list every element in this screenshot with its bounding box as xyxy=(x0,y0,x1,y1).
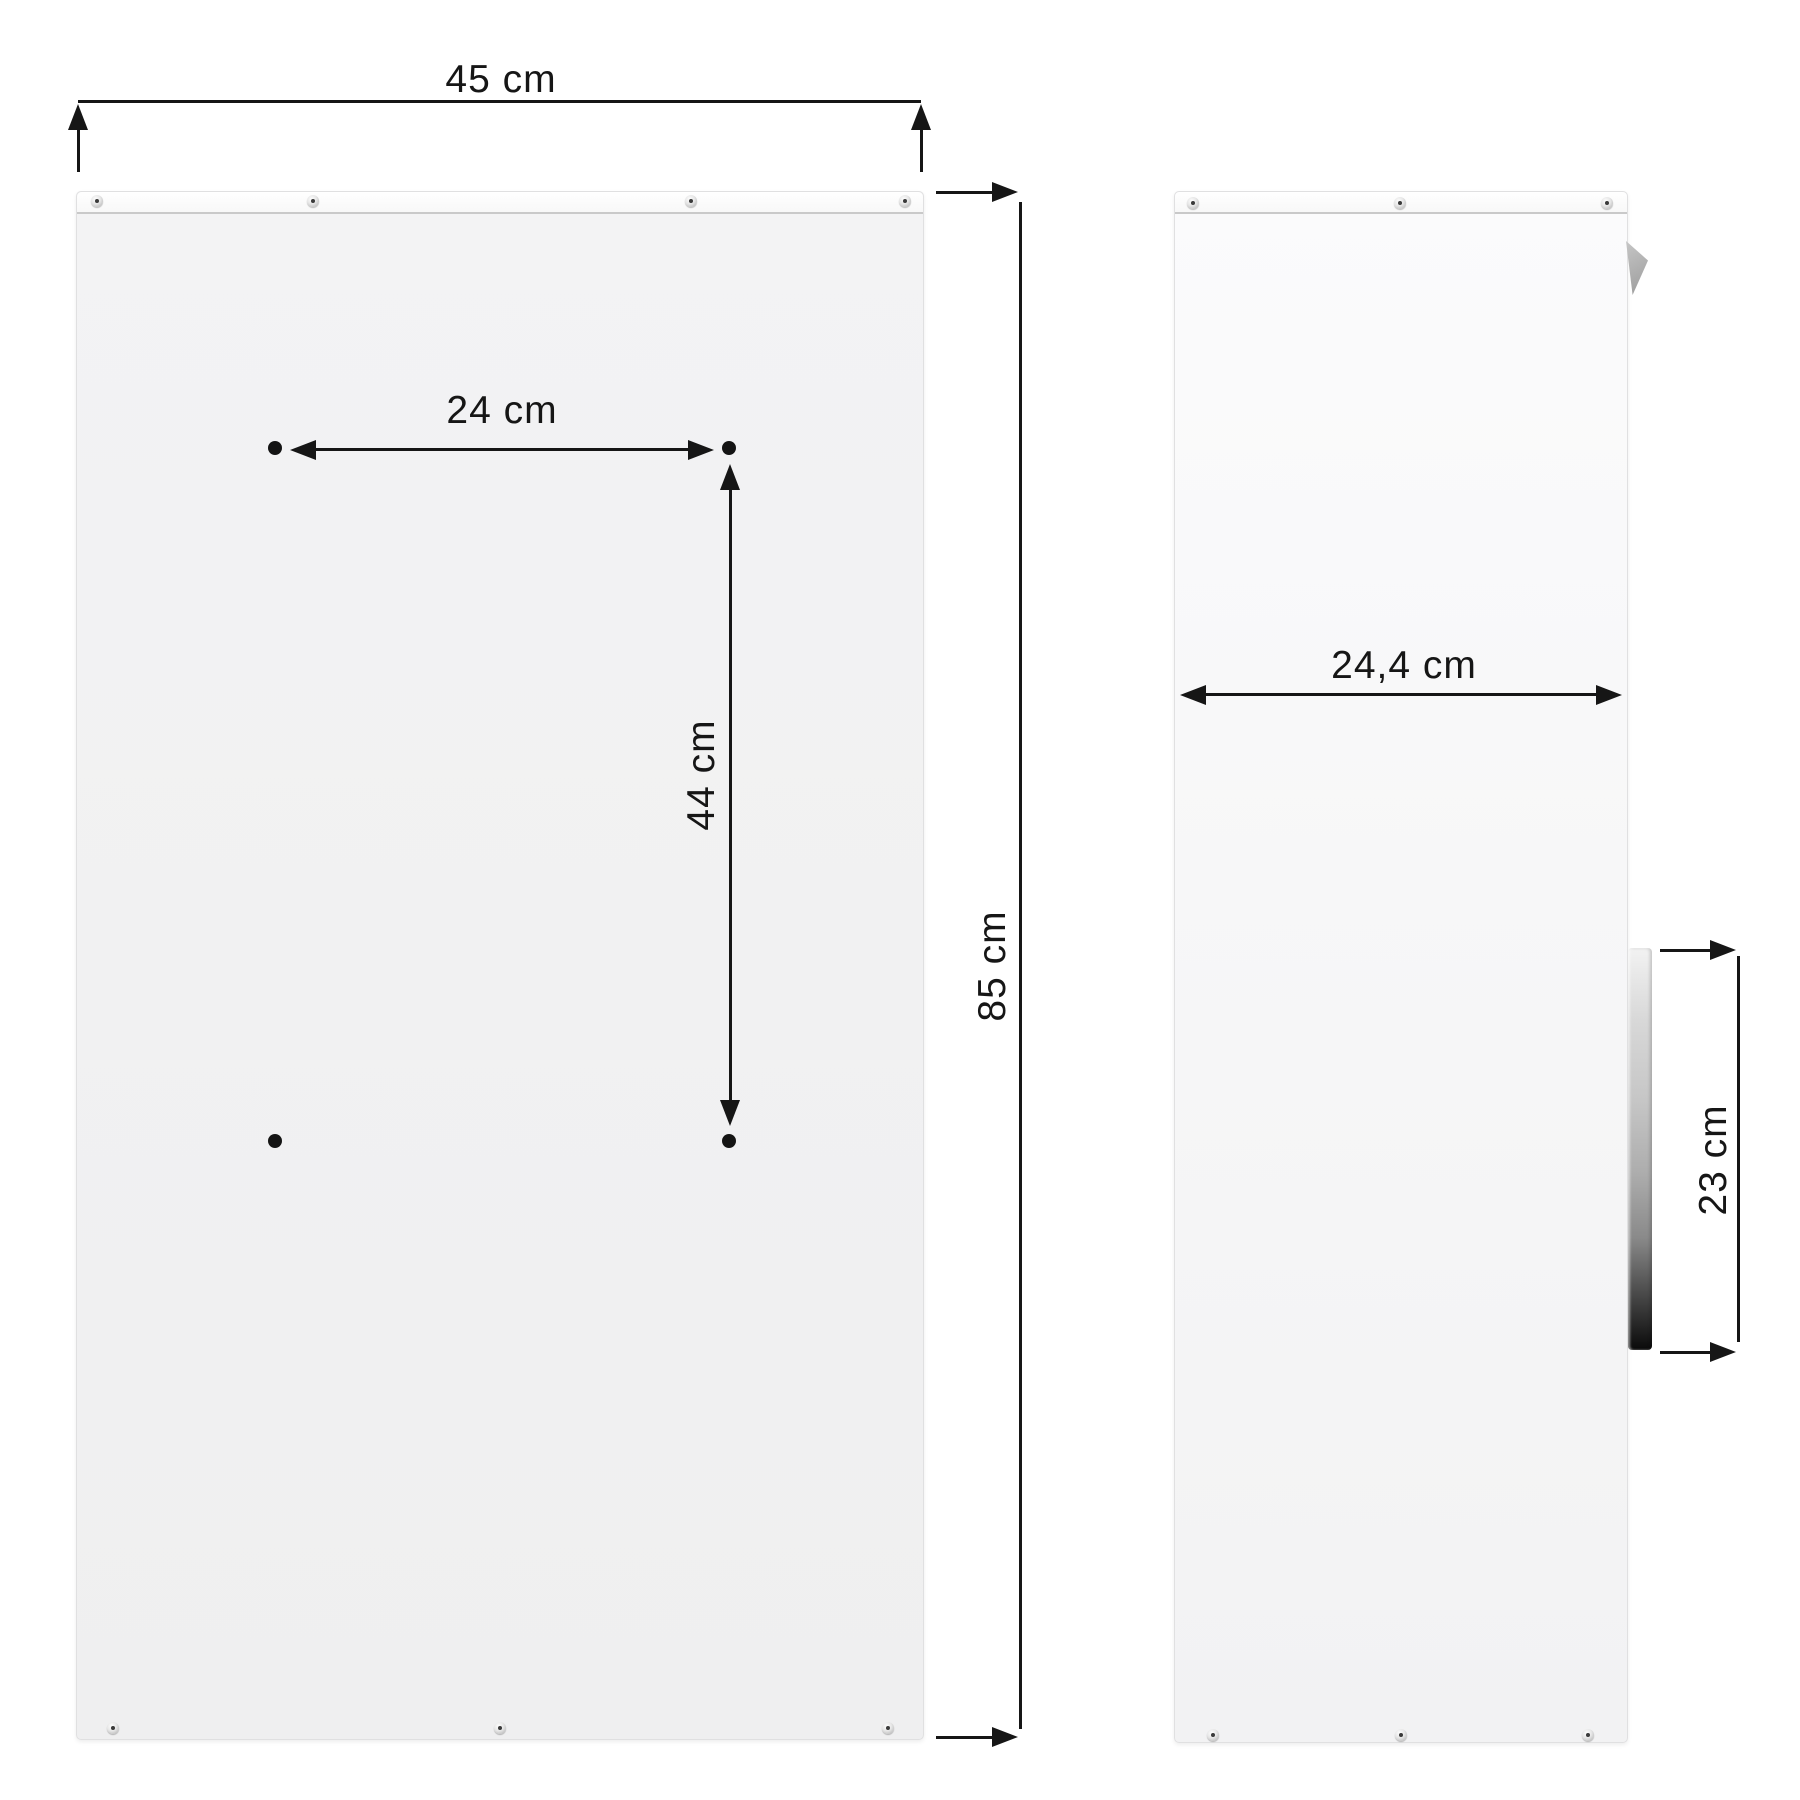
arrow-down-icon xyxy=(720,1100,740,1126)
corner-flap xyxy=(1626,241,1648,295)
screw-icon xyxy=(1207,1729,1219,1741)
screw-center xyxy=(1586,1733,1590,1737)
screw-center xyxy=(498,1726,502,1730)
dimension-line xyxy=(1737,956,1740,1342)
screw-center xyxy=(95,199,99,203)
door-handle xyxy=(1628,948,1652,1350)
screw-center xyxy=(1399,1733,1403,1737)
mounting-hole-dot xyxy=(268,1134,282,1148)
screw-center xyxy=(1605,201,1609,205)
arrow-up-icon xyxy=(911,104,931,130)
arrow-right-icon xyxy=(992,182,1018,202)
screw-icon xyxy=(307,195,319,207)
screw-center xyxy=(1191,201,1195,205)
side-view-panel xyxy=(1174,191,1628,1743)
screw-center xyxy=(689,199,693,203)
screw-center xyxy=(903,199,907,203)
mounting-hole-dot xyxy=(268,441,282,455)
dim-depth-244-label: 24,4 cm xyxy=(1264,644,1544,688)
dimension-line xyxy=(1019,202,1022,1729)
mounting-hole-dot xyxy=(722,441,736,455)
screw-icon xyxy=(107,1722,119,1734)
mounting-rail xyxy=(77,192,923,214)
dimension-line xyxy=(936,191,994,194)
dimension-line xyxy=(1660,1351,1712,1354)
screw-icon xyxy=(91,195,103,207)
dimension-line xyxy=(729,478,732,1114)
screw-icon xyxy=(899,195,911,207)
screw-icon xyxy=(685,195,697,207)
dimension-diagram: 45 cm 24 cm 44 cm 85 cm 24 xyxy=(0,0,1800,1800)
arrow-right-icon xyxy=(688,440,714,460)
arrow-right-icon xyxy=(1710,940,1736,960)
dim-hole-spacing-44-label: 44 cm xyxy=(680,690,724,860)
dimension-line xyxy=(936,1736,994,1739)
screw-icon xyxy=(1394,197,1406,209)
screw-icon xyxy=(1582,1729,1594,1741)
screw-icon xyxy=(1601,197,1613,209)
screw-icon xyxy=(494,1722,506,1734)
screw-icon xyxy=(882,1722,894,1734)
screw-center xyxy=(311,199,315,203)
screw-center xyxy=(111,1726,115,1730)
arrow-up-icon xyxy=(720,464,740,490)
screw-icon xyxy=(1187,197,1199,209)
mounting-hole-dot xyxy=(722,1134,736,1148)
dim-width-45-label: 45 cm xyxy=(381,58,621,102)
arrow-left-icon xyxy=(1180,685,1206,705)
dimension-line xyxy=(1192,693,1610,696)
screw-center xyxy=(1211,1733,1215,1737)
dim-handle-23-label: 23 cm xyxy=(1692,1075,1736,1245)
screw-icon xyxy=(1395,1729,1407,1741)
dimension-line xyxy=(77,128,80,172)
arrow-left-icon xyxy=(290,440,316,460)
screw-center xyxy=(1398,201,1402,205)
dimension-line xyxy=(300,448,704,451)
arrow-up-icon xyxy=(68,104,88,130)
dim-height-85-label: 85 cm xyxy=(971,881,1015,1051)
arrow-right-icon xyxy=(1710,1342,1736,1362)
dimension-line xyxy=(1660,949,1712,952)
dim-hole-spacing-24-label: 24 cm xyxy=(382,389,622,433)
arrow-right-icon xyxy=(1596,685,1622,705)
screw-center xyxy=(886,1726,890,1730)
arrow-right-icon xyxy=(992,1727,1018,1747)
dimension-line xyxy=(920,128,923,172)
